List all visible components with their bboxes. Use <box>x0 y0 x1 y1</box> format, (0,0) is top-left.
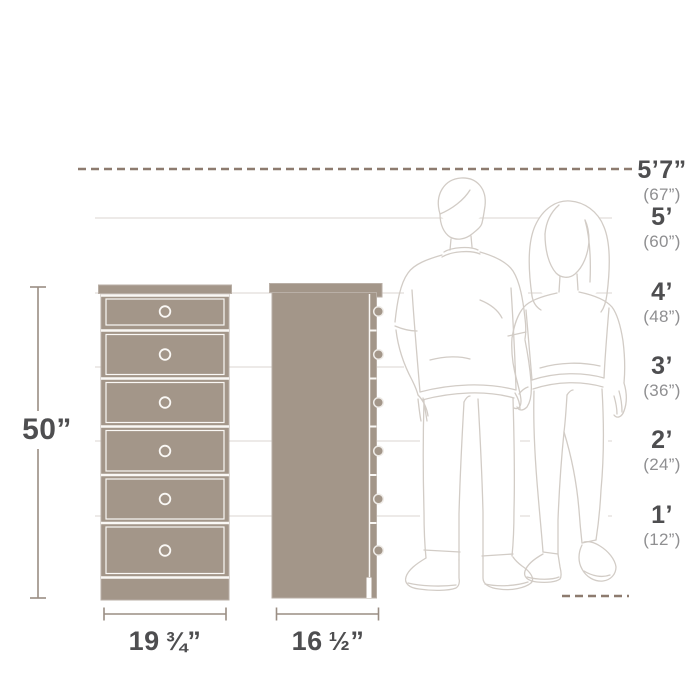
side-depth-whole: 16 <box>292 626 323 656</box>
height-marker-feet: 5’ <box>624 205 700 230</box>
height-marker-feet: 1’ <box>624 503 700 528</box>
height-marker-feet: 2’ <box>624 428 700 453</box>
height-marker-row: 1’ (12”) <box>624 503 700 548</box>
height-marker-inches: (48”) <box>624 308 700 325</box>
height-marker-inches: (60”) <box>624 233 700 250</box>
dresser-front-view <box>99 285 232 600</box>
dresser-side-view <box>270 284 384 599</box>
height-marker-row: 4’ (48”) <box>624 280 700 325</box>
front-width-label: 19 ¾” <box>103 626 227 657</box>
side-depth-fraction: ½ <box>329 628 351 656</box>
height-marker-feet: 4’ <box>624 280 700 305</box>
height-marker-inches: (24”) <box>624 456 700 473</box>
height-dimension-label: 50” <box>12 411 82 449</box>
dimension-diagram: 5’7” (67”) 5’ (60”) 4’ (48”) 3’ (36”) 2’… <box>0 0 700 700</box>
front-width-dimension-line <box>104 608 226 621</box>
front-width-unit: ” <box>187 626 201 656</box>
height-marker-row: 5’ (60”) <box>624 205 700 250</box>
height-marker-row: 5’7” (67”) <box>624 158 700 203</box>
height-marker-feet: 3’ <box>624 354 700 379</box>
height-marker-inches: (67”) <box>624 186 700 203</box>
toe-kick-recess <box>367 578 372 599</box>
diagram-graphics <box>0 0 700 700</box>
front-width-whole: 19 <box>129 626 160 656</box>
height-marker-row: 3’ (36”) <box>624 354 700 399</box>
side-depth-dimension-line <box>277 608 379 621</box>
side-depth-label: 16 ½” <box>266 626 390 657</box>
height-marker-row: 2’ (24”) <box>624 428 700 473</box>
front-width-fraction: ¾ <box>166 628 188 656</box>
side-depth-unit: ” <box>350 626 364 656</box>
height-marker-inches: (36”) <box>624 382 700 399</box>
height-marker-feet: 5’7” <box>624 158 700 183</box>
height-marker-inches: (12”) <box>624 531 700 548</box>
